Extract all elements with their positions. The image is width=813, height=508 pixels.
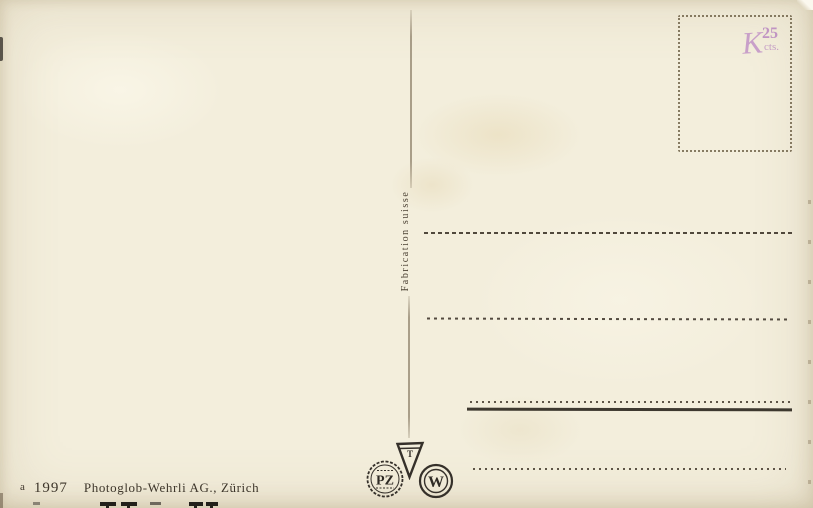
w-letter: W: [428, 474, 444, 491]
pz-letters: PZ: [376, 474, 394, 489]
postcard-back: K 25 cts. Fabrication suisse T PZ W a199…: [0, 0, 813, 508]
cutoff-print-mark: [33, 502, 40, 505]
imprint-prefix: a: [20, 481, 25, 493]
cutoff-print-mark: [121, 502, 137, 506]
address-line-5: [473, 468, 786, 470]
w-monogram-logo: W: [418, 463, 454, 499]
divider-line-top: [410, 10, 412, 188]
publisher-imprint: a1997Photoglob-Wehrli AG., Zürich: [20, 479, 259, 497]
address-line-2: [427, 318, 790, 321]
divider-line-bottom: [408, 296, 410, 438]
cutoff-print-mark: [150, 502, 161, 505]
right-edge-artifacts: [808, 200, 811, 490]
handstamp-unit: cts.: [764, 42, 779, 53]
stamp-box: K 25 cts.: [678, 15, 792, 152]
fabrication-suisse-label: Fabrication suisse: [400, 185, 414, 297]
scan-edge-mark-bottom: [0, 493, 3, 508]
cutoff-print-mark: [189, 502, 203, 506]
cutoff-print-mark: [206, 502, 218, 506]
top-right-corner-highlight: [797, 0, 813, 10]
handstamp-value: 25: [762, 27, 778, 41]
handstamp-letter: K: [741, 27, 764, 58]
address-line-4-solid: [467, 408, 792, 412]
cutoff-print-mark: [100, 502, 116, 506]
imprint-publisher: Photoglob-Wehrli AG., Zürich: [84, 480, 259, 495]
address-line-3-dotted: [470, 401, 790, 403]
rate-handstamp: K 25 cts.: [742, 27, 788, 69]
triangle-letter: T: [407, 449, 413, 459]
scan-edge-mark: [0, 37, 3, 61]
imprint-number: 1997: [34, 480, 68, 496]
address-line-1: [424, 232, 792, 234]
pz-monogram-logo: PZ: [366, 460, 404, 498]
